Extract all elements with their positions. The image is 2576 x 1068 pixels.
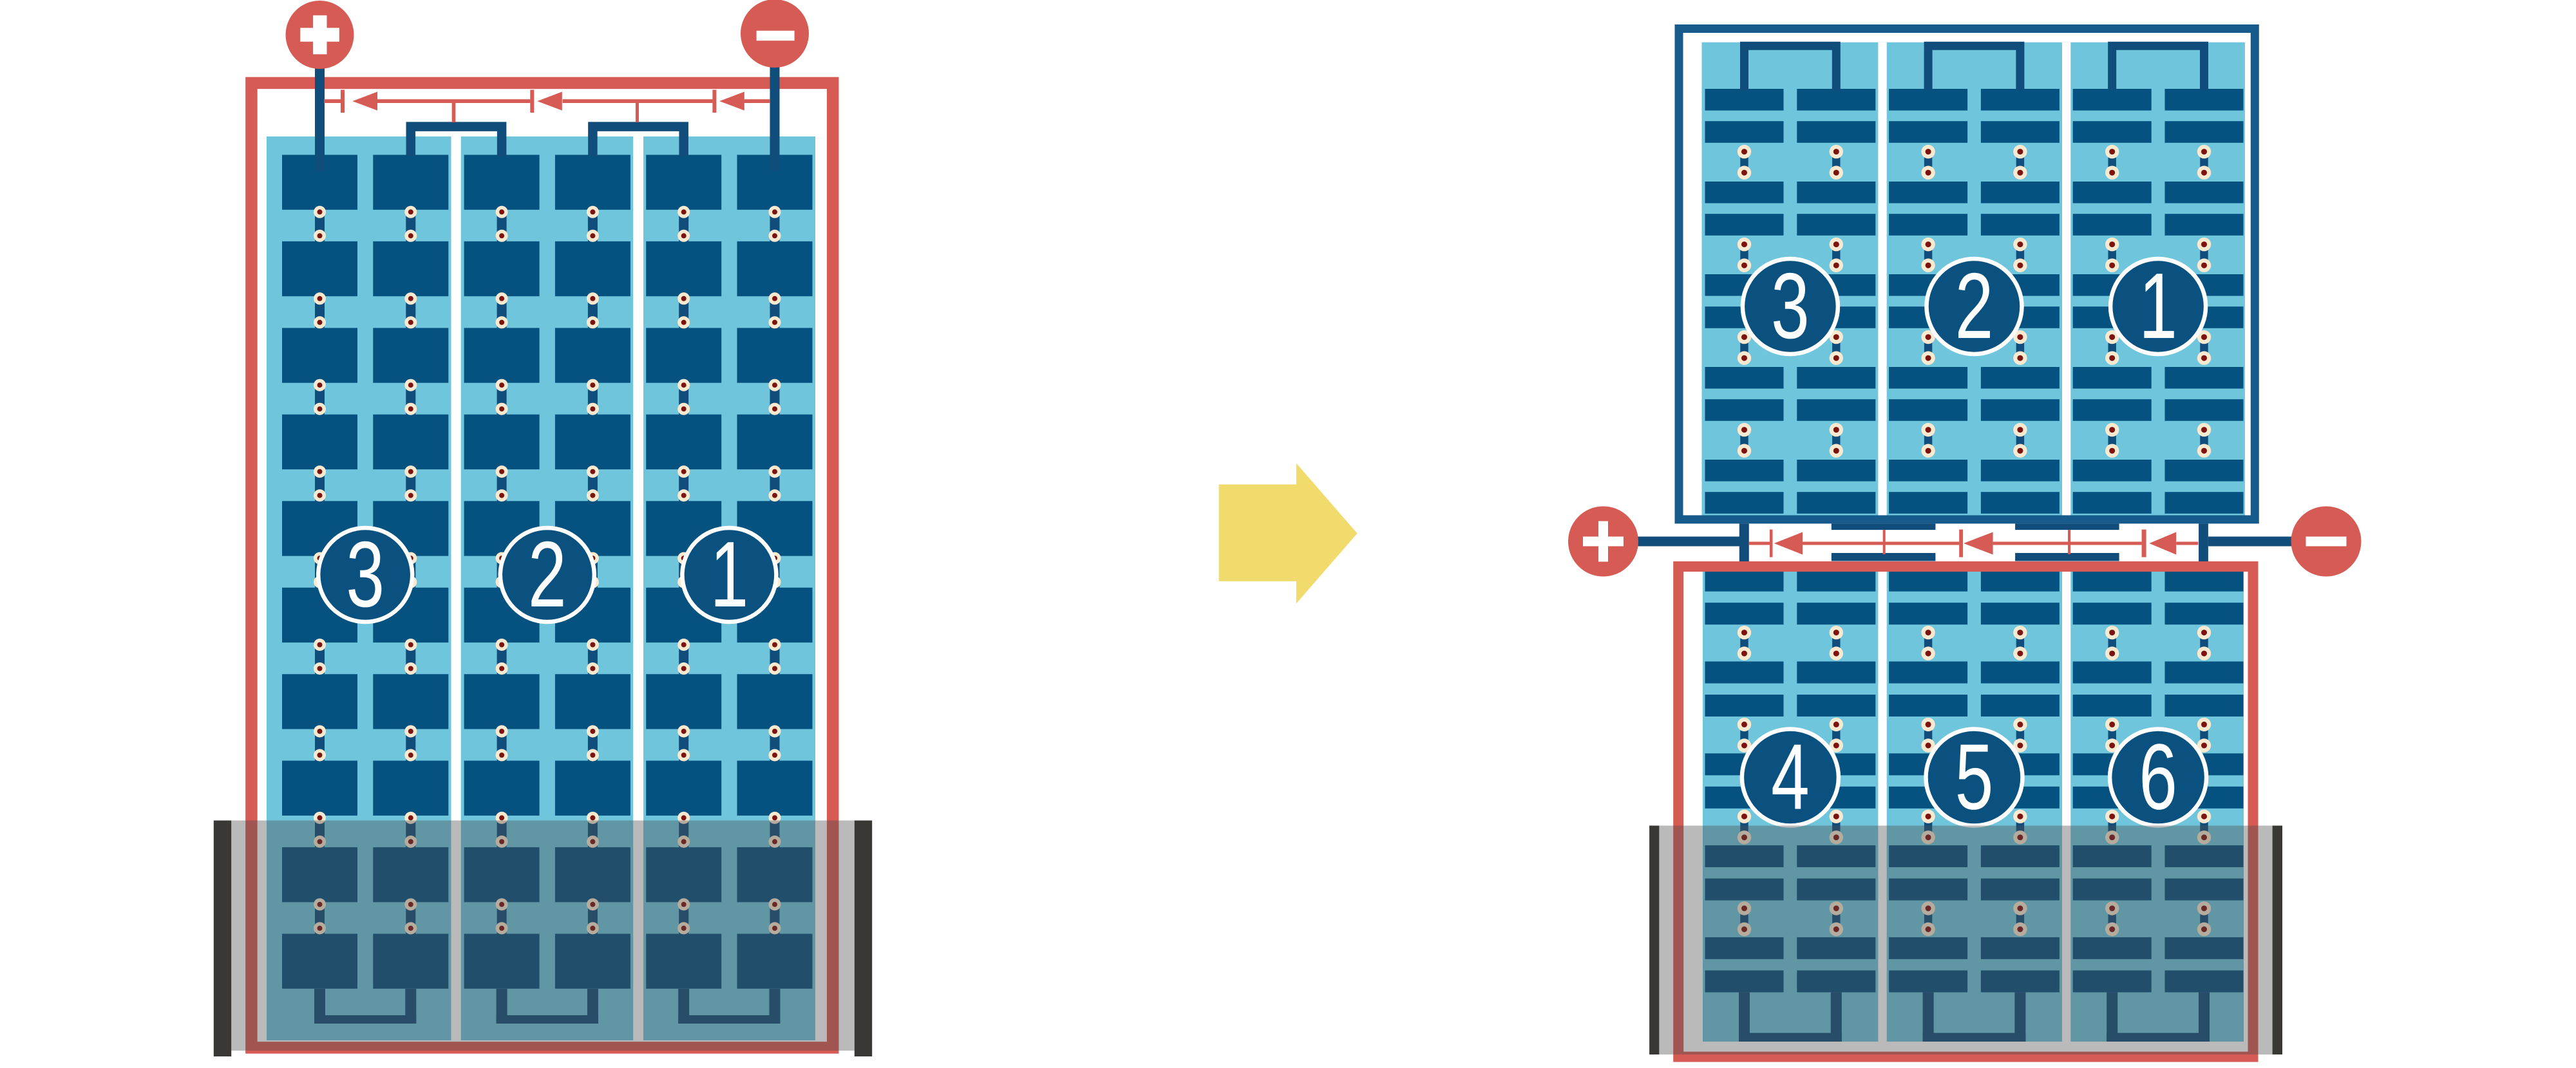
svg-text:4: 4: [1771, 726, 1810, 829]
svg-text:1: 1: [2139, 254, 2177, 358]
svg-text:6: 6: [2139, 726, 2177, 829]
svg-text:2: 2: [528, 523, 567, 626]
svg-text:3: 3: [1771, 254, 1810, 358]
svg-text:2: 2: [1955, 254, 1994, 358]
svg-text:3: 3: [346, 523, 384, 626]
svg-text:1: 1: [710, 523, 749, 626]
svg-text:5: 5: [1955, 726, 1994, 829]
